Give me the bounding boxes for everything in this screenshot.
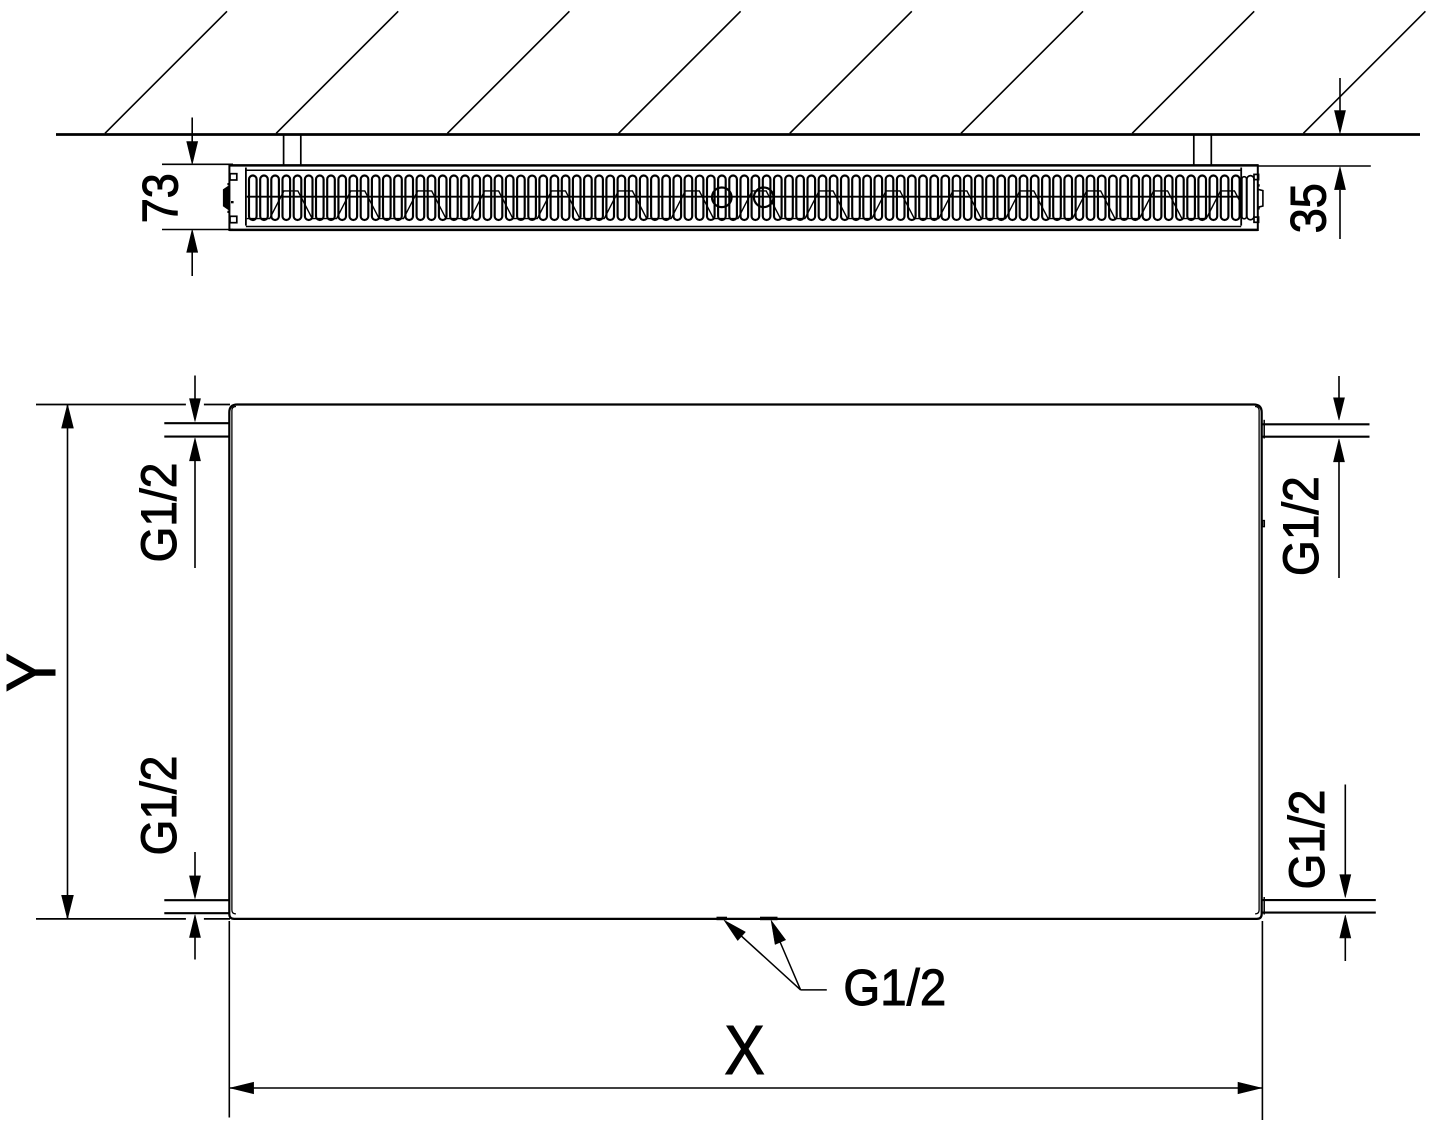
svg-text:35: 35 (1281, 183, 1337, 233)
svg-text:G1/2: G1/2 (843, 959, 946, 1016)
svg-text:G1/2: G1/2 (1280, 790, 1335, 890)
svg-text:73: 73 (134, 173, 190, 223)
svg-text:X: X (724, 1011, 765, 1089)
svg-text:G1/2: G1/2 (1274, 476, 1329, 576)
svg-text:G1/2: G1/2 (132, 756, 187, 856)
svg-text:G1/2: G1/2 (132, 463, 187, 563)
svg-text:Y: Y (0, 653, 70, 692)
